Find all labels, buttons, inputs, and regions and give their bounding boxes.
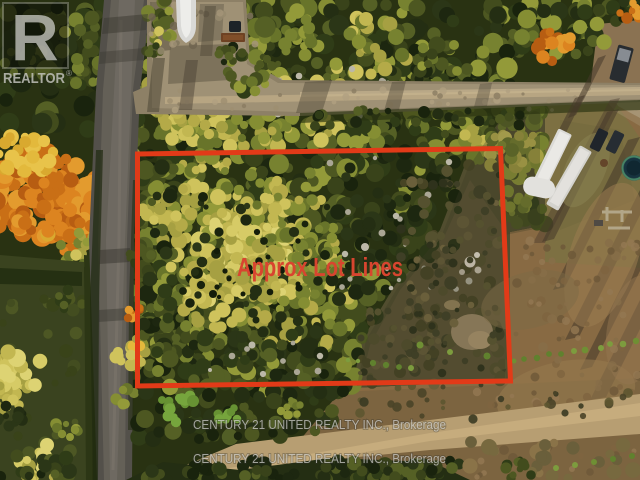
svg-text:REALTOR: REALTOR bbox=[3, 70, 65, 87]
svg-text:R: R bbox=[11, 0, 59, 74]
svg-text:CENTURY 21 UNITED REALTY INC.,: CENTURY 21 UNITED REALTY INC., Brokerage bbox=[193, 417, 446, 432]
svg-text:CENTURY 21 UNITED REALTY INC.,: CENTURY 21 UNITED REALTY INC., Brokerage bbox=[193, 451, 446, 466]
svg-text:®: ® bbox=[66, 69, 72, 78]
svg-text:Approx Lot Lines: Approx Lot Lines bbox=[237, 254, 403, 282]
